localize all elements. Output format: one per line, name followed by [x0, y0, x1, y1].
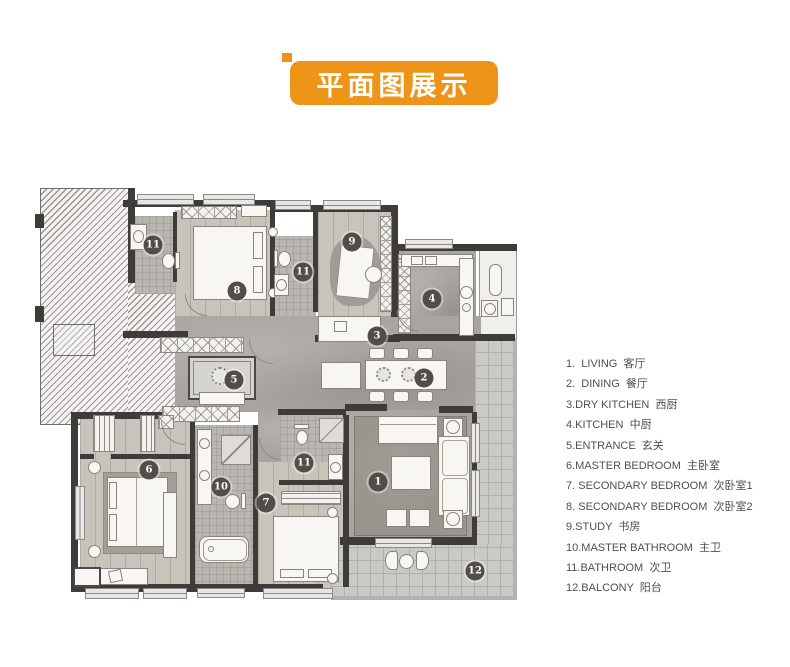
room-marker-master-bedroom: 6 [140, 461, 159, 480]
legend-item: 10.MASTER BATHROOM 主卫 [566, 538, 753, 558]
room-marker-living: 1 [369, 473, 388, 492]
page-title: 平面图展示 [317, 64, 472, 103]
room-marker-dining: 2 [415, 369, 434, 388]
room-marker-bathroom: 11 [294, 263, 313, 282]
legend-item: 4.KITCHEN 中厨 [566, 415, 753, 435]
floor-plan: 1181194325610117112 [35, 148, 525, 618]
title-accent-square [282, 53, 292, 62]
room-marker-dry-kitchen: 3 [368, 327, 387, 346]
room-marker-study: 9 [343, 233, 362, 252]
legend-item: 11.BATHROOM 次卫 [566, 558, 753, 578]
room-marker-master-bathroom: 10 [212, 478, 231, 497]
legend-item: 1. LIVING 客厅 [566, 354, 753, 374]
room-marker-bathroom: 11 [295, 454, 314, 473]
room-marker-secondary-bedroom-1: 7 [257, 494, 276, 513]
room-marker-balcony: 12 [466, 562, 485, 581]
marker-layer: 1181194325610117112 [35, 148, 525, 618]
room-marker-entrance: 5 [225, 371, 244, 390]
legend-item: 7. SECONDARY BEDROOM 次卧室1 [566, 476, 753, 496]
room-marker-secondary-bedroom-2: 8 [228, 282, 247, 301]
legend-item: 5.ENTRANCE 玄关 [566, 436, 753, 456]
legend-item: 2. DINING 餐厅 [566, 374, 753, 394]
room-marker-bathroom: 11 [144, 236, 163, 255]
room-marker-kitchen: 4 [423, 290, 442, 309]
legend-item: 8. SECONDARY BEDROOM 次卧室2 [566, 497, 753, 517]
legend-item: 3.DRY KITCHEN 西厨 [566, 395, 753, 415]
room-legend: 1. LIVING 客厅2. DINING 餐厅3.DRY KITCHEN 西厨… [566, 354, 753, 599]
legend-item: 12.BALCONY 阳台 [566, 578, 753, 598]
page-title-badge: 平面图展示 [290, 61, 498, 105]
legend-item: 9.STUDY 书房 [566, 517, 753, 537]
legend-item: 6.MASTER BEDROOM 主卧室 [566, 456, 753, 476]
